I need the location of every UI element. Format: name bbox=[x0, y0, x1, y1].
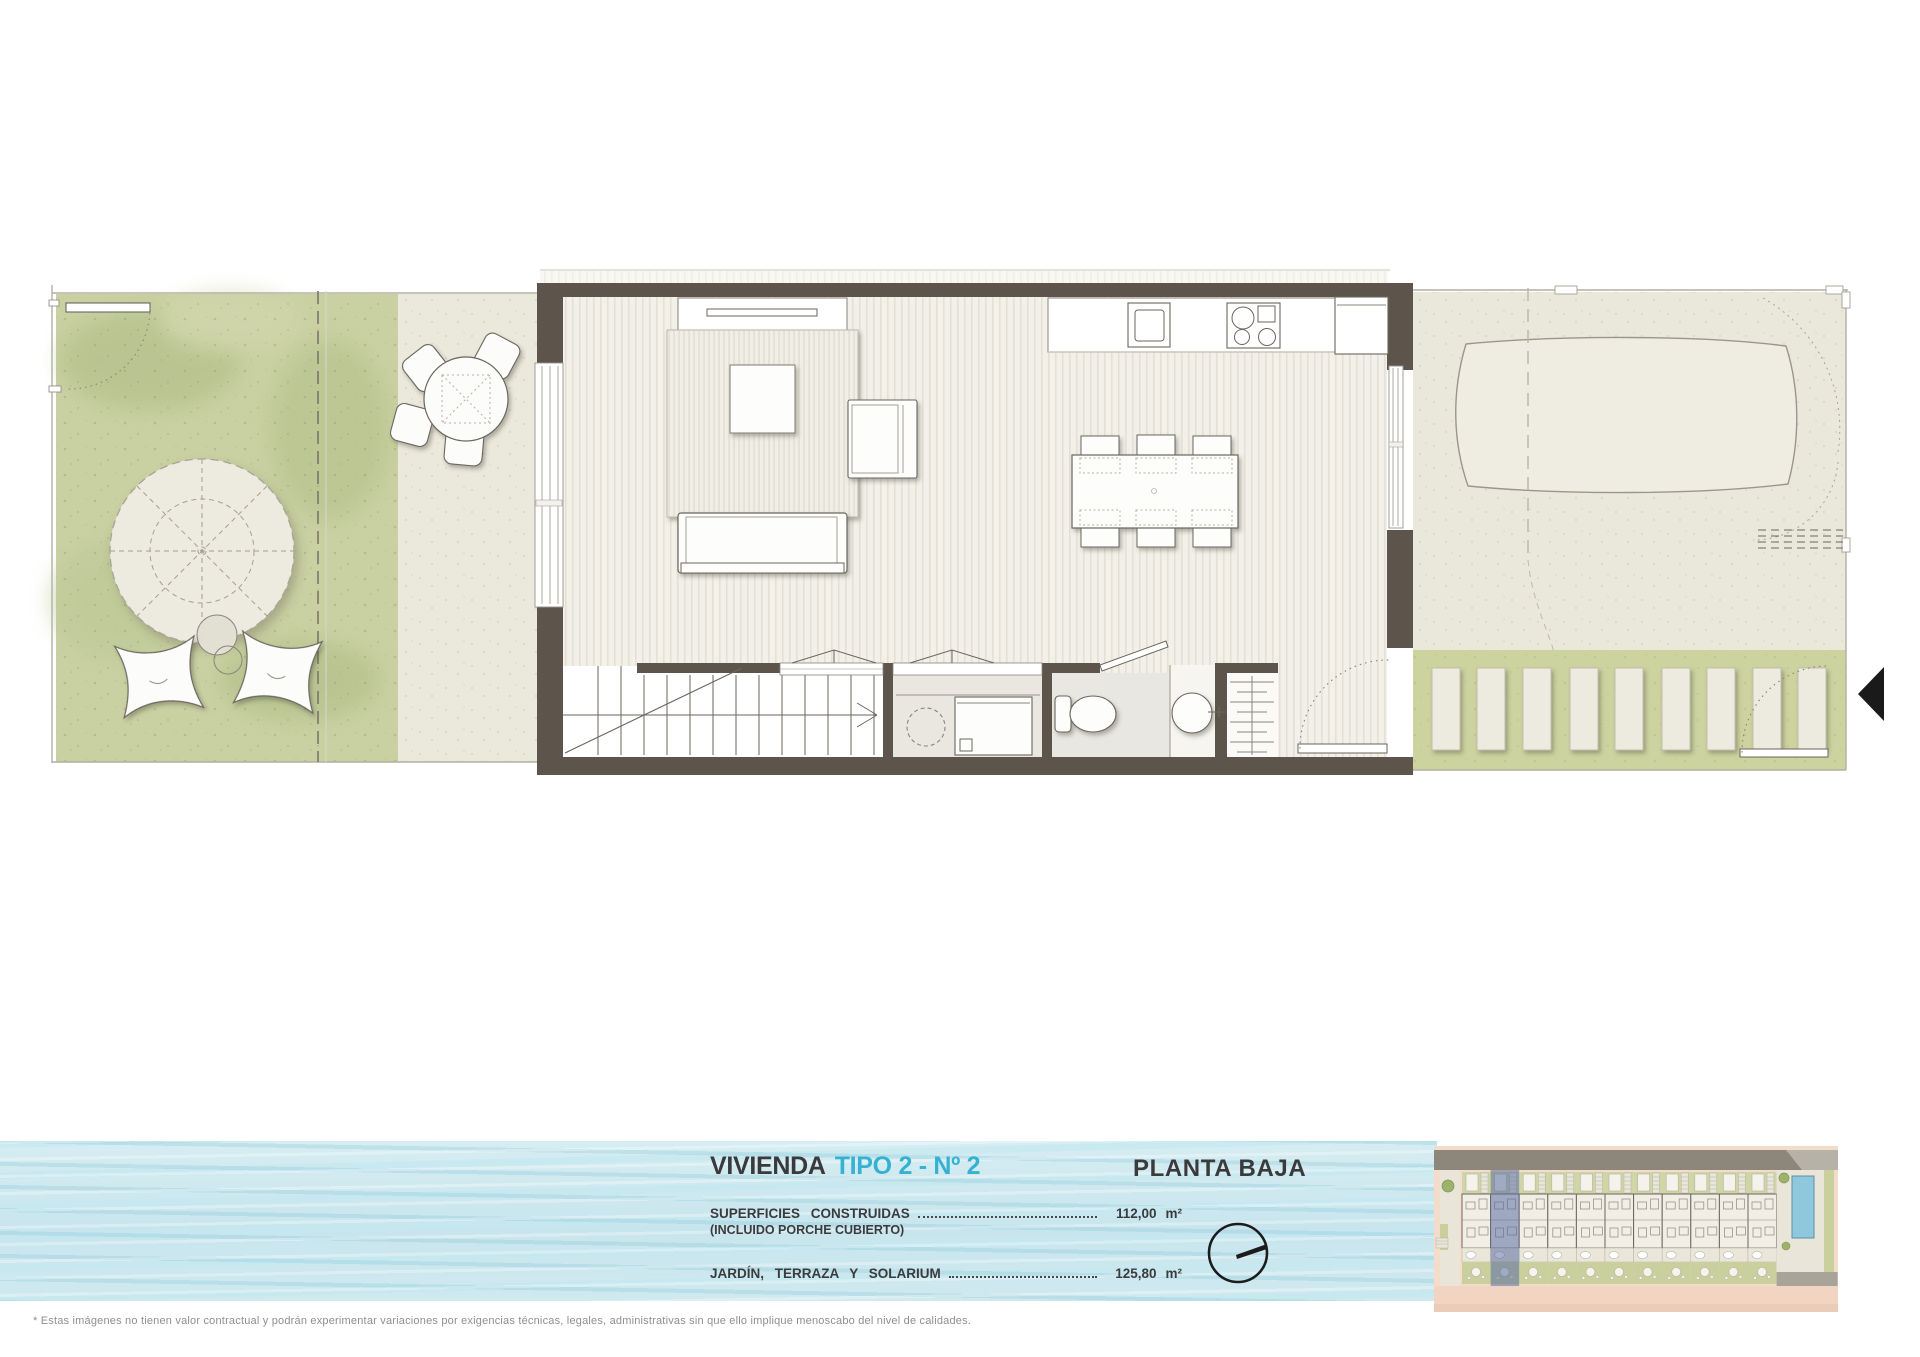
surface-label: SUPERFICIES CONSTRUIDAS bbox=[710, 1206, 910, 1221]
cooktop bbox=[1227, 303, 1280, 348]
title-prefix: VIVIENDA bbox=[710, 1152, 826, 1181]
window-right bbox=[1389, 366, 1403, 528]
coffee-table bbox=[730, 365, 795, 433]
site-plan-thumbnail bbox=[1434, 1146, 1838, 1312]
toilet bbox=[1055, 696, 1116, 732]
sofa bbox=[678, 513, 847, 573]
dotted-leader bbox=[949, 1266, 1097, 1278]
site-road bbox=[1434, 1150, 1838, 1170]
surface-value: 112,00 bbox=[1105, 1206, 1157, 1221]
neighbour-strip bbox=[540, 271, 1388, 283]
page-title: VIVIENDA TIPO 2 - Nº 2 bbox=[710, 1152, 980, 1181]
highlighted-unit bbox=[1491, 1170, 1520, 1286]
washbasin bbox=[1172, 693, 1212, 733]
kitchen bbox=[1048, 297, 1388, 354]
surface-label: JARDÍN, TERRAZA Y SOLARIUM bbox=[710, 1266, 941, 1281]
understair-closet bbox=[780, 663, 883, 675]
car-outline bbox=[1456, 337, 1797, 492]
kitchen-sink bbox=[1128, 303, 1170, 347]
surface-sublabel: (INCLUIDO PORCHE CUBIERTO) bbox=[710, 1223, 910, 1237]
fridge bbox=[1335, 297, 1388, 354]
floor-label: PLANTA BAJA bbox=[1133, 1155, 1306, 1183]
dotted-leader bbox=[918, 1206, 1097, 1218]
tree-icon bbox=[1442, 1180, 1454, 1192]
surface-value: 125,80 bbox=[1105, 1266, 1157, 1281]
deck-planks bbox=[1432, 668, 1826, 750]
window-left bbox=[535, 363, 563, 607]
dining-table bbox=[1072, 455, 1238, 528]
tree-icon bbox=[1782, 1242, 1790, 1250]
garden bbox=[49, 285, 537, 763]
tv-cabinet bbox=[678, 298, 847, 330]
house bbox=[535, 270, 1413, 775]
dining-set bbox=[1072, 435, 1238, 547]
pool bbox=[1792, 1176, 1814, 1238]
laundry-closet-front bbox=[893, 663, 1042, 675]
armchair bbox=[848, 400, 917, 478]
surface-unit: m² bbox=[1166, 1206, 1183, 1221]
surface-row-built: SUPERFICIES CONSTRUIDAS (INCLUIDO PORCHE… bbox=[710, 1206, 1182, 1237]
surface-row-garden: JARDÍN, TERRAZA Y SOLARIUM 125,80 m² bbox=[710, 1266, 1182, 1281]
parasol-spokes bbox=[110, 459, 294, 643]
brochure-page: VIVIENDA TIPO 2 - Nº 2 PLANTA BAJA SUPER… bbox=[0, 0, 1920, 1357]
tree-icon bbox=[1779, 1173, 1789, 1183]
title-highlight: TIPO 2 - Nº 2 bbox=[835, 1152, 981, 1181]
stairs-zone bbox=[563, 666, 883, 757]
disclaimer: * Estas imágenes no tienen valor contrac… bbox=[33, 1315, 971, 1327]
north-arrow-icon bbox=[1203, 1219, 1273, 1289]
entry-arrow-icon bbox=[1858, 667, 1884, 721]
surface-unit: m² bbox=[1166, 1266, 1183, 1281]
laundry-appliance bbox=[955, 697, 1032, 755]
kitchen-counter bbox=[1048, 298, 1335, 352]
carport-terrace bbox=[1413, 286, 1884, 770]
